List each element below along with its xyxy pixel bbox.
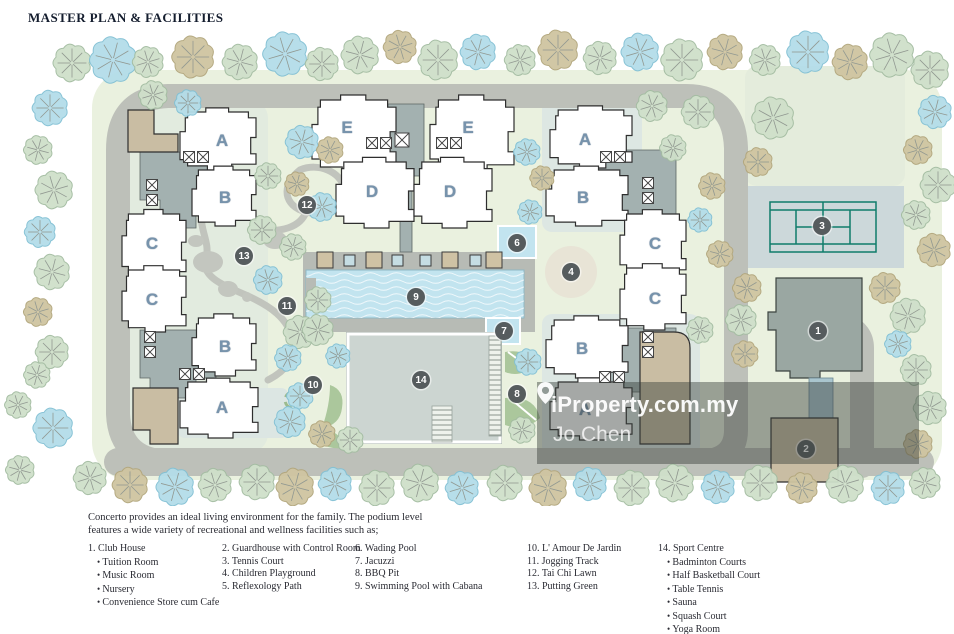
legend-intro: Concerto provides an ideal living enviro… <box>88 511 440 537</box>
legend-item: 14. Sport Centre <box>658 543 760 556</box>
lift-symbol <box>437 138 448 149</box>
tree-icon <box>621 33 658 71</box>
tree-icon <box>280 234 306 261</box>
lift-symbol <box>643 347 654 358</box>
sport-centre <box>346 332 502 444</box>
cabana <box>442 252 458 268</box>
tree-icon <box>920 167 954 203</box>
lift-symbol <box>643 178 654 189</box>
legend-item: 6. Wading Pool <box>355 543 483 556</box>
tree-icon <box>309 421 335 448</box>
lift-symbol <box>381 138 392 149</box>
tree-icon <box>5 392 31 419</box>
tree-icon <box>318 467 351 500</box>
tree-icon <box>317 137 343 164</box>
facilities-legend: Concerto provides an ideal living enviro… <box>0 505 954 634</box>
tree-icon <box>504 45 535 76</box>
tree-icon <box>903 430 932 459</box>
legend-item: 12. Tai Chi Lawn <box>527 568 621 581</box>
tree-icon <box>900 355 931 386</box>
tree-icon <box>418 40 457 80</box>
tree-icon <box>725 305 756 336</box>
tower-footprint <box>546 166 628 226</box>
tree-icon <box>112 467 147 503</box>
tree-icon <box>172 36 214 78</box>
tree-icon <box>583 41 616 74</box>
tree-icon <box>307 193 336 222</box>
tree-icon <box>460 34 495 70</box>
legend-bullet: Yoga Room <box>658 623 760 634</box>
cabana <box>392 255 403 266</box>
tree-icon <box>359 470 394 506</box>
tree-icon <box>918 95 951 128</box>
lift-symbol <box>600 372 611 383</box>
legend-item: 1. Club House <box>88 543 219 556</box>
lift-symbol <box>184 152 195 163</box>
entrance-feature <box>809 378 833 418</box>
tree-icon <box>871 471 904 504</box>
legend-bullet: Music Room <box>88 569 219 583</box>
tree-icon <box>138 81 167 110</box>
guardhouse <box>771 418 838 482</box>
tree-icon <box>707 34 742 70</box>
tree-icon <box>274 407 305 438</box>
lift-symbol <box>395 133 409 147</box>
tree-icon <box>913 391 946 424</box>
tree-icon <box>326 344 350 368</box>
tree-icon <box>890 298 925 334</box>
legend-item: 7. Jacuzzi <box>355 556 483 569</box>
tree-icon <box>285 172 309 196</box>
tower-footprint <box>192 314 256 376</box>
legend-item: 10. L' Amour De Jardin <box>527 543 621 556</box>
lift-symbol <box>147 180 158 191</box>
lift-symbol <box>145 347 156 358</box>
tree-icon <box>787 31 829 73</box>
tree-icon <box>518 200 542 224</box>
site-plan: ABCCBAEEDDABCCBA123467891011121314 iProp… <box>0 26 954 506</box>
legend-bullet: Half Basketball Court <box>658 569 760 583</box>
tree-icon <box>656 464 693 502</box>
tree-icon <box>445 471 478 504</box>
cabana <box>317 252 333 268</box>
tree-icon <box>276 468 313 506</box>
tree-icon <box>614 470 649 506</box>
tree-icon <box>341 36 378 74</box>
tree-icon <box>132 47 163 78</box>
page-title: MASTER PLAN & FACILITIES <box>28 10 223 26</box>
tree-icon <box>732 274 761 303</box>
legend-column-4: 10. L' Amour De Jardin11. Jogging Track1… <box>527 543 621 593</box>
tree-icon <box>869 273 900 304</box>
tree-icon <box>24 217 55 248</box>
master-plan-page: MASTER PLAN & FACILITIES <box>0 0 954 634</box>
tree-icon <box>752 97 794 139</box>
lift-symbol <box>643 193 654 204</box>
tree-icon <box>509 417 535 444</box>
tree-icon <box>35 171 72 209</box>
tree-icon <box>23 136 52 165</box>
tree-icon <box>688 208 712 232</box>
tree-icon <box>337 427 363 454</box>
legend-item: 3. Tennis Court <box>222 556 361 569</box>
tree-icon <box>34 254 69 290</box>
lift-symbol <box>194 369 205 380</box>
legend-bullet: Squash Court <box>658 610 760 624</box>
tree-icon <box>73 461 106 494</box>
legend-bullet: Convenience Store cum Cafe <box>88 596 219 610</box>
stairs <box>432 406 452 442</box>
tree-icon <box>175 90 201 117</box>
tree-icon <box>401 464 438 502</box>
legend-bullet: Badminton Courts <box>658 556 760 570</box>
tree-icon <box>732 341 758 368</box>
tower-footprint <box>192 166 256 226</box>
tower-footprint <box>122 266 186 332</box>
tree-icon <box>909 468 940 499</box>
tree-icon <box>832 44 867 80</box>
tree-icon <box>742 465 777 501</box>
tree-icon <box>529 469 566 506</box>
lift-symbol <box>367 138 378 149</box>
legend-bullet: Table Tennis <box>658 583 760 597</box>
tree-icon <box>198 468 231 501</box>
site-plan-drawing <box>0 26 954 506</box>
cabana <box>344 255 355 266</box>
tree-icon <box>515 349 541 376</box>
cabana <box>486 252 502 268</box>
lift-symbol <box>147 195 158 206</box>
cabana <box>366 252 382 268</box>
tree-icon <box>870 33 914 77</box>
wading-pool <box>498 226 536 258</box>
lift-symbol <box>643 332 654 343</box>
tree-icon <box>255 163 281 190</box>
tree-icon <box>826 465 863 503</box>
tree-icon <box>573 467 606 500</box>
tree-icon <box>23 298 52 327</box>
tree-icon <box>275 345 301 372</box>
tower-footprint <box>620 264 686 330</box>
tree-icon <box>285 125 318 158</box>
legend-item: 11. Jogging Track <box>527 556 621 569</box>
tower-footprint <box>546 316 628 378</box>
tree-icon <box>263 32 307 76</box>
tree-icon <box>786 473 817 504</box>
tree-icon <box>287 383 313 410</box>
tree-icon <box>903 136 932 165</box>
tree-icon <box>514 139 540 166</box>
tree-icon <box>911 51 948 89</box>
legend-item: 8. BBQ Pit <box>355 568 483 581</box>
children-playground <box>545 246 597 298</box>
lift-symbol <box>198 152 209 163</box>
tree-icon <box>885 331 911 358</box>
tree-icon <box>24 362 50 389</box>
tree-icon <box>222 44 257 80</box>
cabana <box>470 255 481 266</box>
tree-icon <box>687 317 713 344</box>
tree-icon <box>661 39 703 81</box>
legend-item: 2. Guardhouse with Control Room <box>222 543 361 556</box>
lift-symbol <box>615 152 626 163</box>
tree-icon <box>681 95 714 128</box>
lift-symbol <box>601 152 612 163</box>
tree-icon <box>156 468 193 506</box>
tree-icon <box>32 90 67 126</box>
legend-column-2: 2. Guardhouse with Control Room3. Tennis… <box>222 543 361 593</box>
legend-item: 4. Children Playground <box>222 568 361 581</box>
legend-item: 9. Swimming Pool with Cabana <box>355 581 483 594</box>
legend-column-3: 6. Wading Pool7. Jacuzzi8. BBQ Pit9. Swi… <box>355 543 483 593</box>
tree-icon <box>305 47 338 80</box>
legend-bullet: Nursery <box>88 583 219 597</box>
cabana <box>420 255 431 266</box>
tree-icon <box>707 241 733 268</box>
tower-footprint <box>550 378 632 440</box>
tree-icon <box>660 135 686 162</box>
tree-icon <box>239 464 274 500</box>
legend-column-5: 14. Sport CentreBadminton CourtsHalf Bas… <box>658 543 760 634</box>
tree-icon <box>701 470 734 503</box>
tree-icon <box>636 91 667 122</box>
tree-icon <box>901 201 930 230</box>
tree-icon <box>253 266 282 295</box>
tree-icon <box>90 37 136 84</box>
legend-item: 5. Reflexology Path <box>222 581 361 594</box>
tree-icon <box>538 30 577 70</box>
legend-bullet: Tuition Room <box>88 556 219 570</box>
lift-symbol <box>145 332 156 343</box>
tree-icon <box>302 315 333 346</box>
tree-icon <box>247 216 276 245</box>
lift-symbol <box>180 369 191 380</box>
stairs <box>489 336 501 436</box>
tower-footprint <box>180 378 258 438</box>
tower-footprint <box>414 157 492 228</box>
lift-symbol <box>614 372 625 383</box>
tree-icon <box>530 166 554 190</box>
tree-icon <box>53 44 90 82</box>
tree-icon <box>33 408 72 448</box>
tree-icon <box>743 148 772 177</box>
tree-icon <box>383 30 416 63</box>
tree-icon <box>749 45 780 76</box>
tree-icon <box>5 456 34 485</box>
tree-icon <box>487 465 522 501</box>
legend-column-1: 1. Club HouseTuition RoomMusic RoomNurse… <box>88 543 219 610</box>
tree-icon <box>917 233 950 266</box>
legend-item: 13. Putting Green <box>527 581 621 594</box>
legend-bullet: Sauna <box>658 596 760 610</box>
lift-symbol <box>451 138 462 149</box>
tower-footprint <box>336 157 414 228</box>
tree-icon <box>699 173 725 200</box>
tree-icon <box>305 287 331 314</box>
